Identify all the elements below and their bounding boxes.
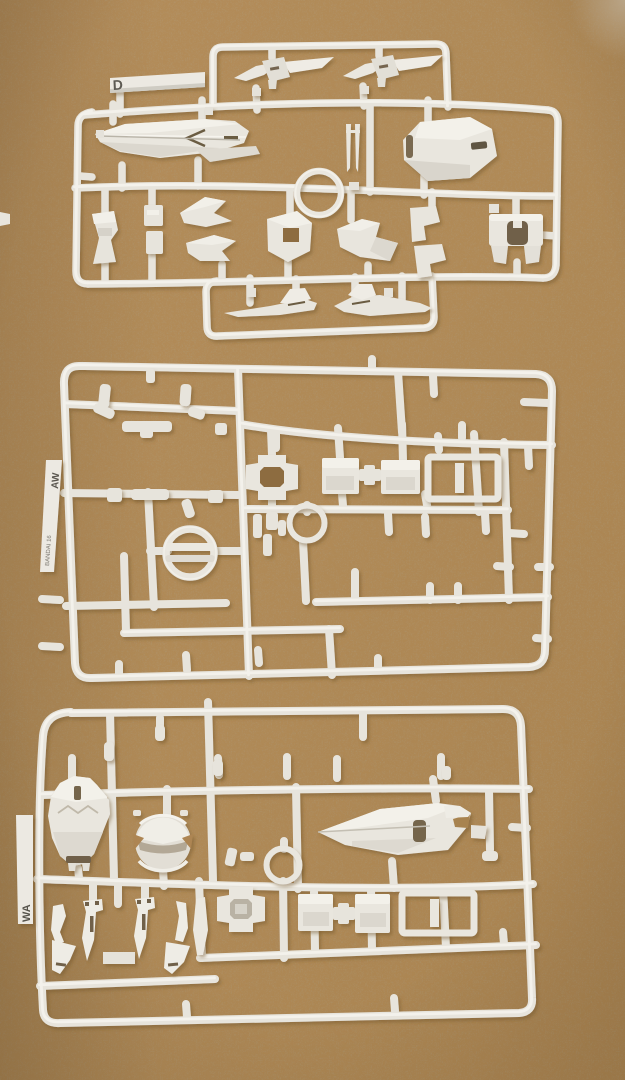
- svg-text:WA: WA: [21, 904, 33, 922]
- svg-text:AW: AW: [50, 472, 62, 489]
- svg-text:D: D: [112, 76, 123, 93]
